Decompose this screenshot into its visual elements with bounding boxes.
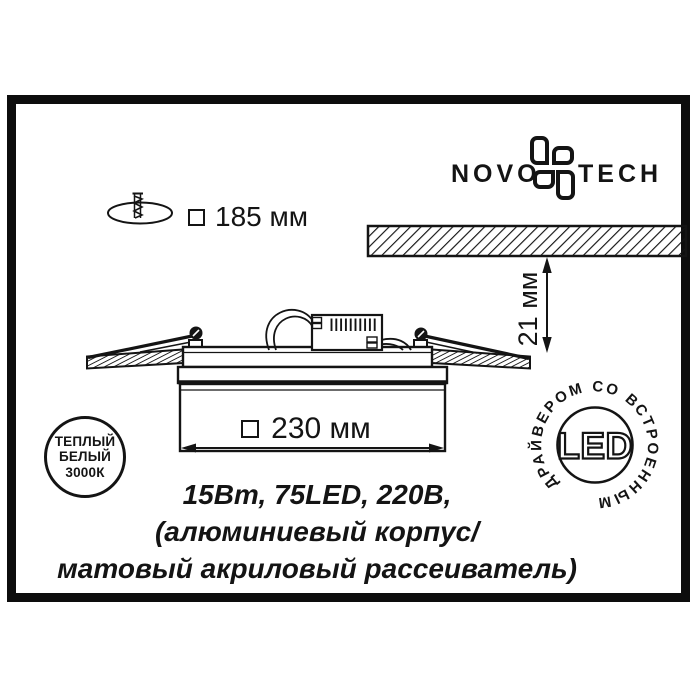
ceiling-section [368,226,686,256]
warm-badge-line2: БЕЛЫЙ [59,449,111,465]
body-width-label: 230 мм [186,412,426,446]
led-center-text: LED [557,426,633,467]
logo-word-novo: NOVO [451,161,541,188]
petal-bottom-left-icon [533,170,555,189]
petal-top-right-icon [552,146,574,165]
specs-line3: матовый акриловый рассеиватель) [17,550,617,587]
specs-line1: 15Вт, 75LED, 220В, [17,476,617,513]
recess-depth-arrow [542,257,551,353]
specs-line2: (алюминиевый корпус/ [17,513,617,550]
cutout-dimension-value: 185 мм [215,201,308,233]
logo-word-tech: TECH [578,161,662,188]
diagram-page: NOVO TECH 185 мм 21 мм 230 мм ТЕПЛЫЙ БЕЛ… [0,0,700,700]
driver-box [266,310,411,350]
recess-depth-label: 21 мм [513,259,543,359]
specs-block: 15Вт, 75LED, 220В, (алюминиевый корпус/ … [17,476,617,587]
petal-top-left-icon [530,136,549,165]
petal-bottom-right-icon [556,170,575,200]
fixture-diagram [0,0,700,700]
body-width-value: 230 мм [271,412,371,446]
square-symbol [188,209,205,226]
cutout-hole-icon [108,194,172,224]
trim-flange-left [87,350,183,369]
cutout-dimension-label: 185 мм [188,200,308,234]
square-symbol [241,420,259,438]
warm-badge-line1: ТЕПЛЫЙ [55,434,116,450]
